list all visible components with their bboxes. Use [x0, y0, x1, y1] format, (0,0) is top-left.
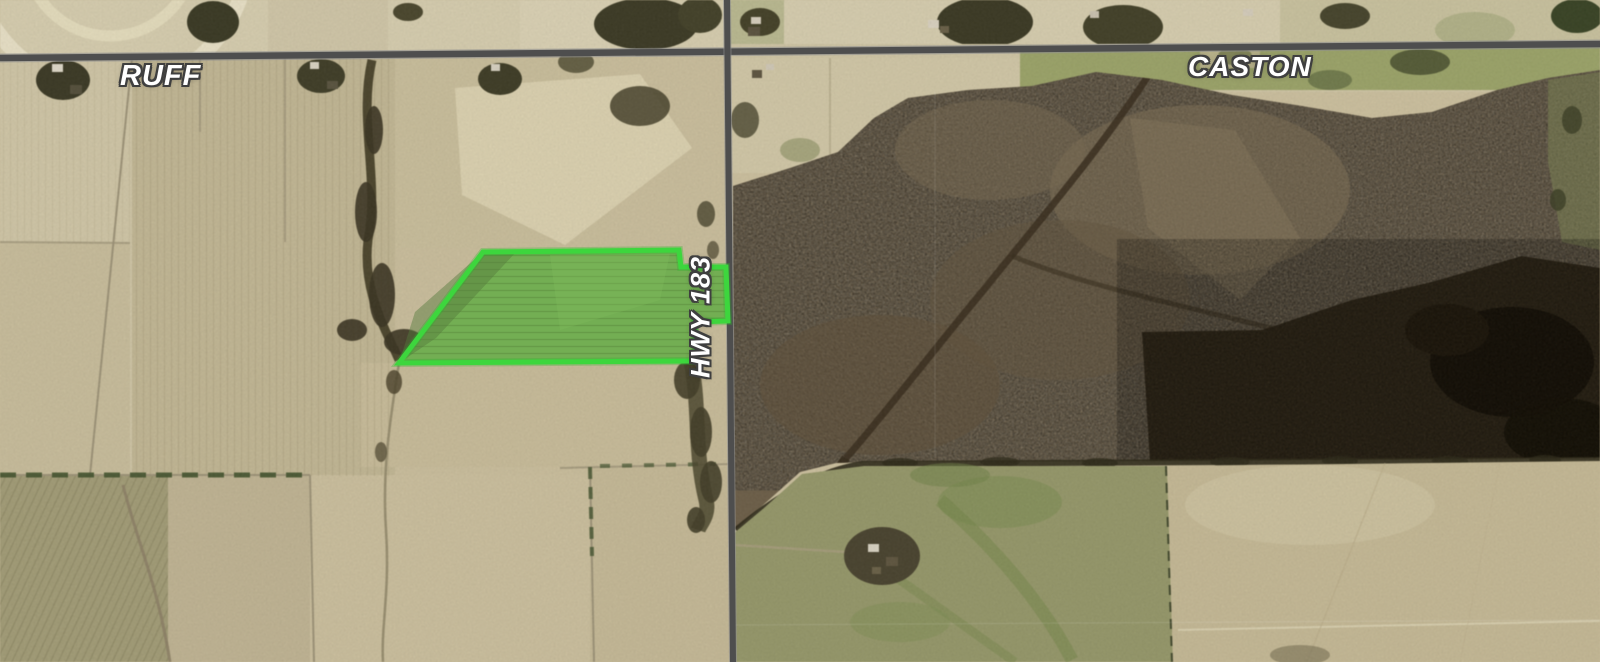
highway-label: HWY 183	[688, 256, 715, 378]
road-label-west: RUFF	[120, 62, 201, 91]
aerial-map-viewport[interactable]: RUFF CASTON HWY 183	[0, 0, 1600, 662]
fields-layer	[0, 0, 1600, 662]
satellite-imagery-canvas	[0, 0, 1600, 662]
road-label-east: CASTON	[1188, 53, 1312, 81]
